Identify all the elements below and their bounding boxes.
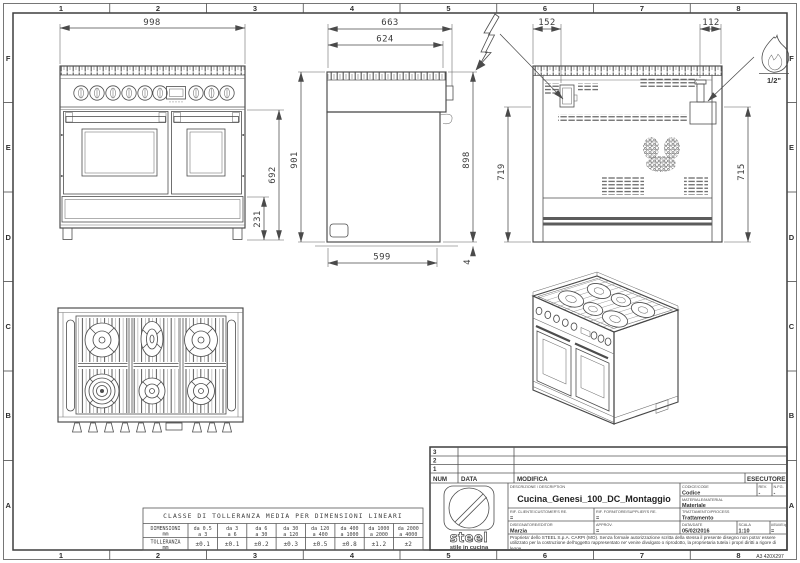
front-drawer — [62, 197, 243, 223]
tolerance-value: ±0.1 — [195, 541, 210, 548]
tolerance-value: ±1.2 — [372, 541, 387, 548]
dim-side-depth-total: 663 — [381, 18, 398, 28]
zone-number: 1 — [59, 4, 63, 13]
tol-row-unit: mm — [162, 545, 168, 551]
sheet-no-label: N.FG. — [774, 485, 784, 489]
approval-label: APPROV. — [596, 523, 613, 527]
gas-size-label: 1/2" — [767, 76, 781, 85]
zone-letter: A — [5, 501, 11, 510]
front-view: 998 692 231 — [60, 18, 284, 240]
zone-number: 5 — [446, 551, 450, 560]
range-a: a 4000 — [399, 532, 417, 538]
date-value: 05/02/2016 — [682, 529, 710, 535]
dim-side-height-back: 898 — [462, 151, 472, 168]
dim-side-base-gap: 4 — [463, 259, 473, 265]
dim-row-unit: mm — [162, 532, 168, 538]
material-value: Materiale — [682, 503, 706, 509]
back-dimensions: 152 112 719 715 — [497, 18, 751, 242]
zone-number: 3 — [253, 551, 257, 560]
mass-label: MASSA/MASS kg — [771, 523, 786, 527]
iso-right-handle — [575, 344, 608, 359]
sheet-no-value: - — [774, 491, 776, 497]
zone-letter: D — [789, 233, 795, 242]
code-label: CODICE/CODE — [682, 485, 709, 489]
range-a: a 1000 — [340, 532, 358, 538]
sheet-format-label: A3 420X297 — [756, 554, 784, 560]
range-a: a 3 — [198, 532, 207, 538]
isometric-view — [533, 272, 678, 424]
tolerance-value: ±0.1 — [225, 541, 240, 548]
dim-back-elec-offset: 152 — [538, 18, 555, 28]
burner-center-top — [141, 322, 163, 357]
zone-letter: B — [5, 411, 11, 420]
burner-front-left — [85, 323, 119, 357]
front-display — [167, 87, 186, 103]
dim-front-height: 692 — [268, 166, 278, 183]
drawing-sheet: 1 2 3 4 5 6 7 8 1 2 3 4 5 6 7 8 F E D C … — [0, 0, 800, 563]
description-label: DESCRIZIONE / DESCRIPTION — [510, 485, 565, 489]
revision-row-number: 3 — [433, 449, 437, 456]
burner-center-bottom — [139, 378, 165, 404]
zone-letter: F — [6, 54, 11, 63]
dim-back-gas-offset: 112 — [702, 18, 719, 28]
logo-brand: steel — [450, 531, 489, 546]
zone-number: 2 — [156, 551, 160, 560]
range-a: a 120 — [283, 532, 298, 538]
data-header: DATA — [461, 476, 478, 483]
zone-number: 8 — [736, 551, 740, 560]
back-view: 152 112 719 715 — [497, 18, 751, 242]
revision-row-number: 1 — [433, 466, 437, 473]
tolerance-value: ±2 — [405, 541, 413, 548]
dim-back-height-right: 715 — [737, 163, 747, 180]
tolerance-value: ±0.3 — [284, 541, 299, 548]
top-view — [58, 308, 243, 432]
scale-value: 1:10 — [739, 529, 750, 535]
zone-number: 6 — [543, 4, 547, 13]
rev-label: REV. — [759, 485, 768, 489]
back-vents — [545, 78, 708, 195]
supplier-ref-label: RIF. FORNITORE/SUPPLIER'S RE. — [596, 510, 657, 514]
tolerance-value: ±0.2 — [254, 541, 269, 548]
zone-letter: C — [5, 322, 11, 331]
gas-leader — [708, 57, 754, 101]
tolerance-table-title: CLASSE DI TOLLERANZA MEDIA PER DIMENSION… — [163, 513, 403, 520]
num-header: NUM — [433, 476, 447, 483]
scale-label: SCALA — [739, 523, 752, 527]
esecutore-header: ESECUTORE — [747, 476, 785, 483]
drawing-canvas: 1 2 3 4 5 6 7 8 1 2 3 4 5 6 7 8 F E D C … — [0, 0, 800, 563]
burner-right-bottom — [188, 378, 215, 405]
side-view: 663 624 901 898 599 4 — [290, 18, 477, 267]
dim-side-height-front: 901 — [290, 151, 300, 168]
range-a: a 400 — [313, 532, 328, 538]
date-label: DATA/DATE — [682, 523, 703, 527]
dim-side-depth-body: 624 — [376, 35, 393, 45]
tolerance-value: ±0.5 — [313, 541, 328, 548]
top-view-knobs — [73, 423, 232, 432]
zone-number: 1 — [59, 551, 63, 560]
zone-number: 3 — [253, 4, 257, 13]
range-a: a 2000 — [370, 532, 388, 538]
zone-letter: C — [789, 322, 795, 331]
tolerance-table: CLASSE DI TOLLERANZA MEDIA PER DIMENSION… — [143, 508, 423, 551]
supplier-ref-value: = — [596, 516, 599, 522]
editor-label: DISEGNATORE/EDITOR — [510, 523, 553, 527]
process-label: TRATTAMENTO/PROCESS — [682, 510, 730, 514]
zone-number: 4 — [350, 551, 355, 560]
drawing-description: Cucina_Genesi_100_DC_Montaggio — [517, 494, 671, 504]
customer-ref-value: = — [510, 516, 513, 522]
burner-right-top — [185, 324, 218, 357]
burner-wok — [85, 374, 119, 408]
range-a: a 30 — [255, 532, 267, 538]
back-perforation-motif — [643, 137, 680, 172]
range-a: a 6 — [228, 532, 237, 538]
zone-letter: D — [5, 233, 11, 242]
dim-side-depth-base: 599 — [373, 253, 390, 263]
dim-front-width: 998 — [143, 18, 160, 28]
zone-letter: F — [789, 54, 794, 63]
zone-number: 5 — [446, 4, 450, 13]
dim-back-height-left: 719 — [497, 163, 507, 180]
zone-number: 2 — [156, 4, 160, 13]
electrical-box — [560, 85, 577, 107]
rev-value: - — [759, 491, 761, 497]
zone-number: 4 — [350, 4, 355, 13]
modifica-header: MODIFICA — [517, 476, 548, 483]
front-control-knobs — [74, 86, 234, 100]
zone-number: 8 — [736, 4, 740, 13]
code-value: Codice — [682, 491, 700, 497]
zone-letter: B — [789, 411, 795, 420]
front-left-oven-door — [64, 112, 169, 195]
zone-number: 7 — [640, 551, 644, 560]
mass-value: = — [771, 529, 774, 535]
zone-letter: E — [6, 143, 11, 152]
zone-number: 7 — [640, 4, 644, 13]
zone-letter: A — [789, 501, 795, 510]
zone-letter: E — [789, 143, 794, 152]
editor-value: Marzia — [510, 529, 528, 535]
process-value: Trattamento — [682, 516, 714, 522]
copyright-notice: Proprieta' dello STEEL S.p.A. CARPI (MO)… — [510, 535, 784, 549]
iso-left-handle — [536, 326, 570, 341]
material-label: MATERIALE/MATERIAL — [682, 498, 723, 502]
side-dimensions: 663 624 901 898 599 4 — [290, 18, 477, 267]
approval-value: = — [596, 529, 599, 535]
front-legs — [63, 228, 242, 240]
front-right-oven-door — [172, 112, 242, 195]
customer-ref-label: RIF. CLIENTE/CUSTOMER'S RE. — [510, 510, 567, 514]
logo-tagline: stile in cucina — [450, 545, 489, 551]
dim-front-plinth: 231 — [253, 210, 263, 227]
zone-number: 6 — [543, 551, 547, 560]
steel-logo: steel stile in cucina — [444, 486, 494, 551]
tolerance-value: ±0.8 — [342, 541, 357, 548]
revision-row-number: 2 — [433, 458, 437, 465]
